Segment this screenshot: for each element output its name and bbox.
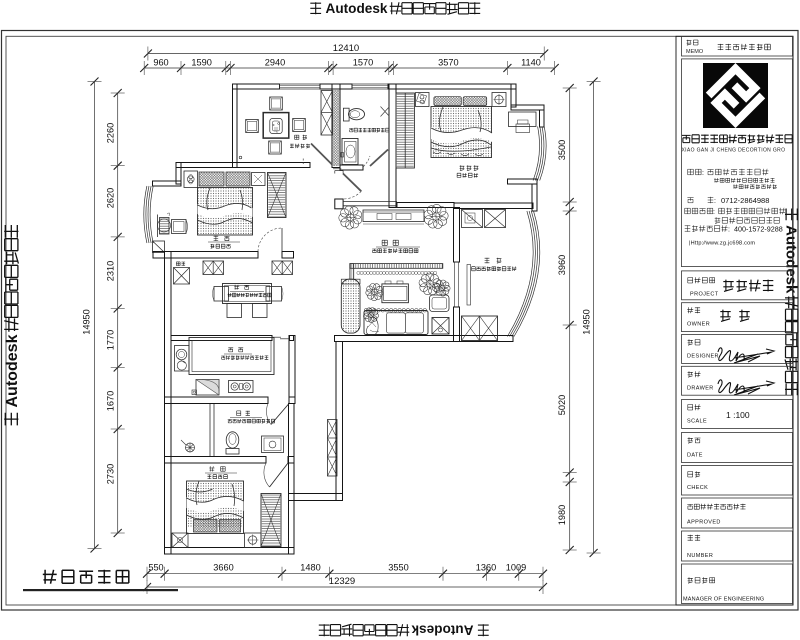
- svg-text:1570: 1570: [353, 58, 373, 68]
- svg-text:960: 960: [153, 58, 168, 68]
- svg-text:550: 550: [148, 563, 163, 573]
- svg-text:DATE: DATE: [687, 453, 703, 459]
- svg-text:SCALE: SCALE: [687, 419, 707, 425]
- svg-text::: :: [702, 170, 704, 177]
- svg-text:NUMBER: NUMBER: [687, 553, 713, 559]
- svg-text:1590: 1590: [191, 58, 211, 68]
- svg-text:2260: 2260: [106, 123, 116, 143]
- svg-text:2940: 2940: [265, 58, 285, 68]
- svg-text::: :: [713, 209, 715, 216]
- svg-text:DESIGNER: DESIGNER: [687, 354, 719, 360]
- svg-text:12410: 12410: [333, 43, 359, 54]
- svg-text:14950: 14950: [82, 309, 92, 335]
- svg-text:CHECK: CHECK: [687, 485, 708, 491]
- svg-text:DRAWER: DRAWER: [687, 386, 714, 392]
- svg-text:1009: 1009: [506, 563, 526, 573]
- svg-text:3500: 3500: [557, 140, 567, 160]
- svg-text::: :: [728, 226, 730, 233]
- svg-text:XIAO GAN JI CHENG DECORTION G: XIAO GAN JI CHENG DECORTION GRO: [682, 148, 786, 154]
- svg-text:|Http:∕∕www.zg.jc698.com: |Http:∕∕www.zg.jc698.com: [689, 241, 755, 247]
- svg-text:MANAGER OF ENGINEERING: MANAGER OF ENGINEERING: [683, 597, 764, 603]
- svg-text:1480: 1480: [300, 563, 320, 573]
- svg-text:1360: 1360: [476, 563, 496, 573]
- svg-text:APPROVED: APPROVED: [687, 520, 721, 526]
- svg-text:12329: 12329: [329, 576, 355, 587]
- svg-text:5020: 5020: [557, 395, 567, 415]
- svg-text:OWNER: OWNER: [687, 322, 710, 328]
- svg-text:3960: 3960: [557, 255, 567, 275]
- svg-text:Autodesk: Autodesk: [411, 622, 473, 637]
- svg-text:MEMO: MEMO: [686, 49, 704, 55]
- svg-text:2730: 2730: [106, 464, 116, 484]
- svg-text:400-1572-9288: 400-1572-9288: [734, 225, 783, 234]
- svg-text:1 :100: 1 :100: [726, 410, 750, 420]
- svg-text:3570: 3570: [438, 58, 458, 68]
- svg-text:2620: 2620: [106, 188, 116, 208]
- svg-text:1670: 1670: [106, 391, 116, 411]
- svg-text:1140: 1140: [521, 58, 541, 68]
- svg-text:3660: 3660: [213, 563, 233, 573]
- svg-text:Autodesk: Autodesk: [782, 225, 799, 294]
- svg-text:1770: 1770: [106, 330, 116, 350]
- svg-text:Autodesk: Autodesk: [3, 334, 21, 407]
- svg-text:1980: 1980: [557, 505, 567, 525]
- svg-text:2310: 2310: [106, 261, 116, 281]
- svg-text:Autodesk: Autodesk: [326, 1, 388, 16]
- svg-text:14950: 14950: [582, 309, 592, 335]
- svg-text:3550: 3550: [388, 563, 408, 573]
- svg-text:0712-2864988: 0712-2864988: [721, 196, 769, 205]
- svg-text:PROJECT: PROJECT: [690, 292, 719, 298]
- svg-text::: :: [714, 198, 716, 205]
